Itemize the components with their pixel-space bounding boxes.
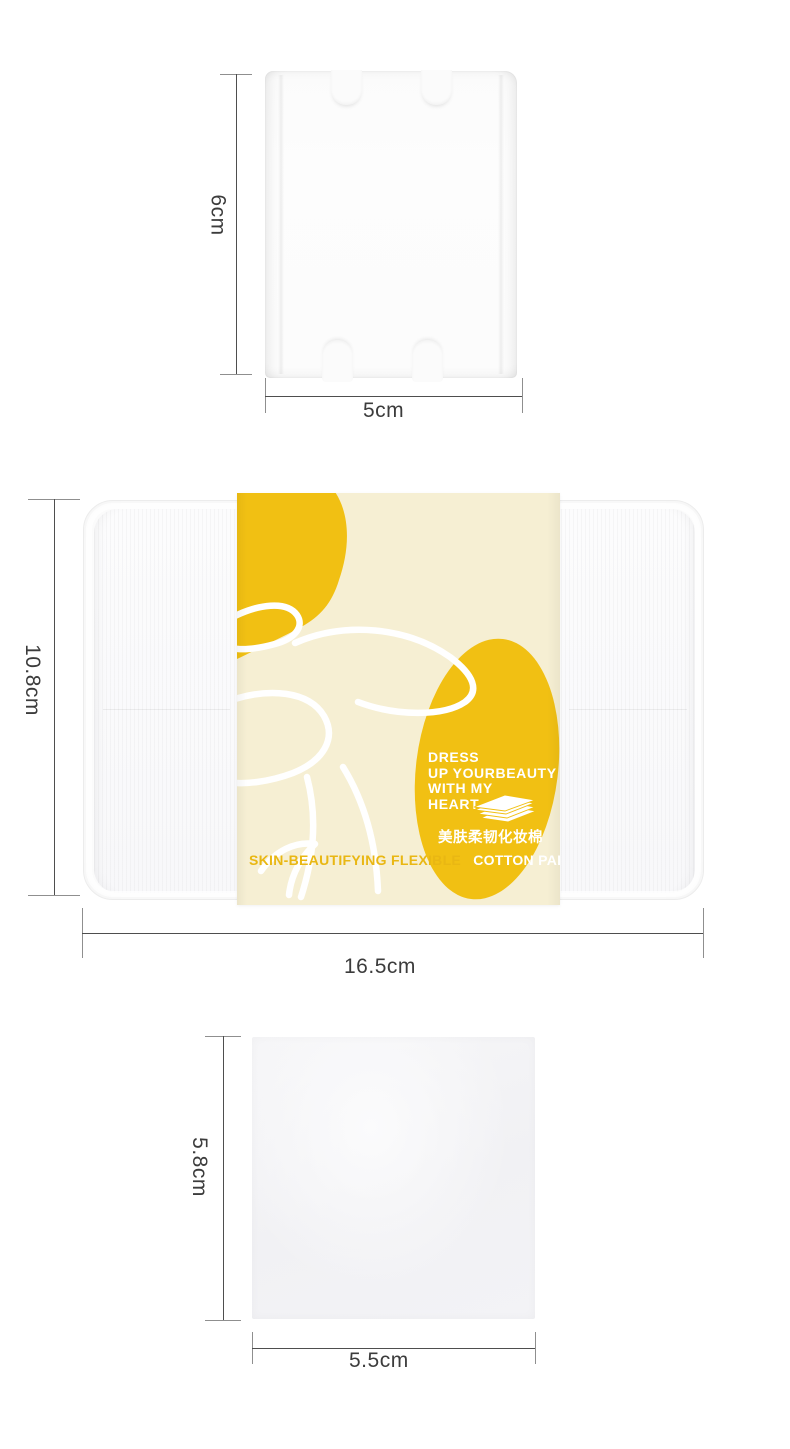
product-name-english: SKIN-BEAUTIFYING FLEXIBLE COTTON PAD [249, 852, 545, 868]
pad-bottom-tab [322, 340, 353, 382]
dimension-cap [28, 895, 80, 896]
dimension-cap [205, 1320, 241, 1321]
dimension-cap [220, 374, 252, 375]
pad-bottom-tab [412, 340, 443, 382]
pad-stack-right [561, 509, 695, 893]
product-size-infographic: 6cm 5cm DRESS UP YOURBEAUTY WITH MY [0, 0, 790, 1449]
width-dimension-label-box: 16.5cm [344, 955, 416, 979]
dimension-line [82, 933, 704, 934]
product-name-english-yellow-part: SKIN-BEAUTIFYING FLEXIBLE [249, 852, 461, 868]
pad-top-tab [331, 70, 362, 105]
package-label-band: DRESS UP YOURBEAUTY WITH MY HEART 美肤柔韧化妆… [237, 493, 560, 905]
dimension-line [236, 74, 237, 375]
width-dimension-label-square-pad: 5.5cm [349, 1349, 409, 1373]
width-dimension-line-box [82, 908, 704, 958]
rect-cotton-pad-photo [265, 71, 517, 378]
pad-fold-line [498, 75, 504, 374]
cotton-pad-stack-icon [473, 794, 539, 822]
product-name-chinese: 美肤柔韧化妆棉 [438, 826, 543, 847]
height-dimension-label-square-pad: 5.8cm [187, 1137, 211, 1197]
dimension-line [265, 396, 523, 397]
height-dimension-label-rect-pad: 6cm [206, 194, 230, 235]
slogan-line: UP YOURBEAUTY [428, 766, 557, 782]
pad-fold-line [278, 75, 284, 374]
dimension-cap [703, 908, 704, 958]
slogan-line: DRESS [428, 750, 557, 766]
pad-top-tab [421, 70, 452, 105]
pad-stack-left [94, 509, 239, 893]
dimension-line [54, 499, 55, 896]
dimension-line [223, 1036, 224, 1321]
dimension-cap [522, 378, 523, 413]
dimension-cap [535, 1332, 536, 1364]
square-cotton-pad-photo [252, 1037, 535, 1319]
height-dimension-label-box: 10.8cm [20, 644, 44, 716]
width-dimension-label-rect-pad: 5cm [363, 399, 404, 423]
product-name-english-white-part: COTTON PAD [473, 852, 560, 868]
